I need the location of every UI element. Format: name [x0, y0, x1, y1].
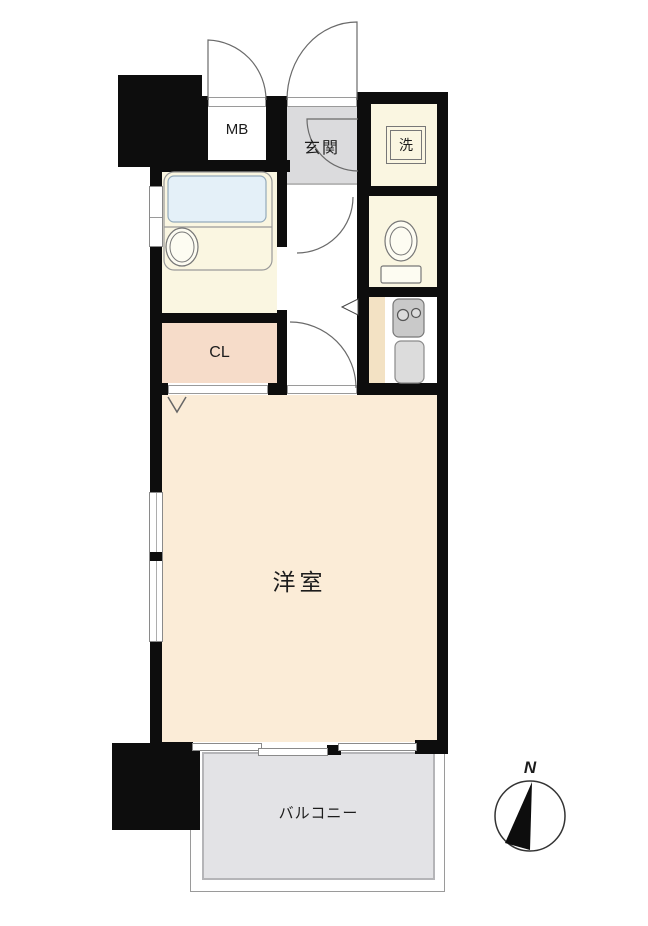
wall-block-bottom-left	[112, 743, 200, 830]
compass-north-label: N	[512, 758, 548, 778]
room-kitchen-counter	[385, 297, 437, 383]
balcony-window-pane	[192, 743, 262, 751]
door-sill	[287, 385, 357, 394]
bathroom-door-opening	[277, 247, 287, 310]
balcony-label: バルコニー	[202, 805, 435, 822]
wall-segment	[357, 92, 371, 188]
balcony-window-pane	[258, 748, 328, 756]
compass-ring	[495, 781, 565, 851]
wall-segment	[150, 247, 162, 492]
wall-segment	[357, 287, 448, 297]
wall-segment	[277, 172, 287, 247]
door-sill	[168, 385, 268, 394]
window-western-room	[149, 492, 163, 642]
window-bathroom	[149, 186, 163, 247]
meter-box-door-arc-icon	[208, 40, 266, 100]
washing-machine-label: 洗	[390, 130, 422, 160]
room-kitchen-floor	[369, 297, 385, 383]
wall-segment	[150, 160, 290, 172]
meter-box-label: MB	[200, 121, 274, 138]
wall-segment	[268, 383, 287, 395]
floorplan-canvas: MB 玄関 洗 CL 洋室 バルコニー N	[0, 0, 648, 926]
wall-segment	[357, 383, 448, 395]
entrance-door-arc-icon	[287, 22, 357, 100]
door-sill	[208, 97, 266, 107]
entrance-step-line	[287, 183, 357, 185]
wall-segment	[150, 642, 162, 748]
window-divider	[150, 217, 162, 218]
wall-block-top-left	[118, 75, 202, 167]
wall-segment	[150, 313, 287, 323]
washing-machine-icon: 洗	[386, 126, 426, 164]
wall-segment	[150, 383, 168, 395]
wall-segment	[415, 740, 448, 754]
room-bathroom	[162, 172, 277, 313]
wall-segment	[357, 186, 448, 196]
room-toilet	[369, 196, 437, 287]
wall-segment	[357, 186, 369, 287]
balcony-window-pane	[338, 743, 417, 751]
compass-needle-icon	[505, 782, 532, 850]
entrance-label: 玄関	[287, 140, 357, 158]
compass-icon	[495, 781, 565, 851]
window-latch	[150, 552, 162, 561]
western-room-label: 洋室	[162, 569, 437, 595]
wall-segment	[357, 287, 369, 395]
door-sill	[287, 97, 357, 107]
window-divider	[156, 493, 157, 641]
closet-label: CL	[162, 344, 277, 362]
room-corridor	[287, 185, 357, 383]
wall-segment	[357, 92, 448, 104]
